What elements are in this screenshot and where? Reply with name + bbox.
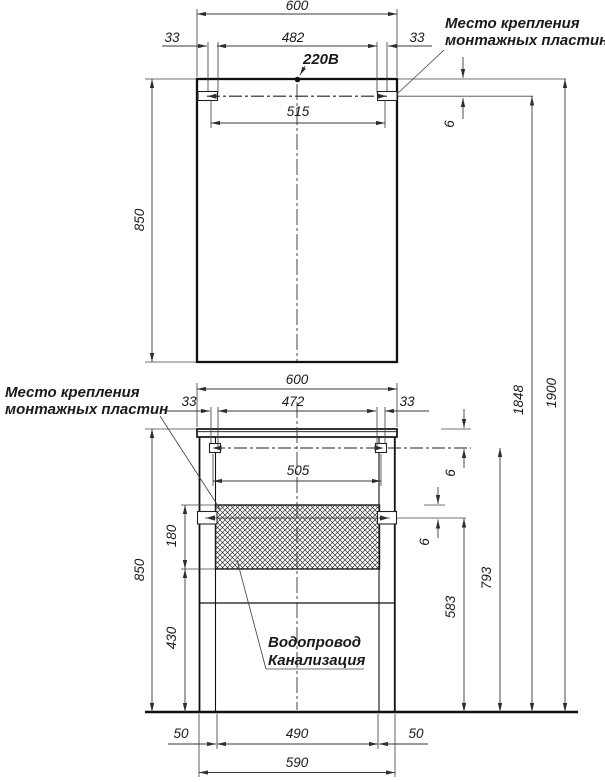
dim-text-cabinet-plate-span: 472 — [282, 394, 305, 409]
dim-cabinet-offset-left: 33 — [166, 394, 210, 411]
vanity-mounting-line — [210, 444, 472, 453]
drawing-canvas: 600 482 33 33 515 850 6 600 472 33 33 — [0, 0, 605, 782]
dim-mirror-height: 850 — [132, 79, 152, 362]
dim-text-cabinet-height: 850 — [132, 558, 147, 581]
label-plumbing-line2: Канализация — [268, 652, 365, 669]
dim-basin-gap: 6 — [417, 487, 438, 546]
dim-text-mirror-plate-span: 482 — [282, 30, 305, 45]
label-mount-plates-top: Место крепления монтажных пластин — [397, 15, 605, 94]
label-mount-plates-left-line1: Место крепления — [5, 384, 140, 401]
dim-text-plinth-offset-left: 50 — [173, 726, 189, 741]
dim-text-cabinet-offset-right: 33 — [399, 394, 415, 409]
label-mount-plates-left-line2: монтажных пластин — [5, 401, 168, 418]
dim-text-mirror-height: 850 — [132, 208, 147, 231]
dim-text-mirror-offset-right: 33 — [409, 30, 425, 45]
label-power-text: 220В — [302, 51, 339, 68]
installation-drawing: 600 482 33 33 515 850 6 600 472 33 33 — [0, 0, 605, 782]
dim-mirror-offset-left: 33 — [162, 30, 207, 46]
dim-cabinet-width: 600 — [197, 372, 397, 389]
dim-body-width: 590 — [199, 755, 395, 773]
dim-text-service-zone-height: 180 — [164, 524, 179, 547]
dim-plinth-offset-right: 50 — [379, 726, 428, 744]
label-power: 220В — [295, 51, 339, 82]
dim-text-cabinet-mount-width: 505 — [287, 463, 310, 478]
dim-mirror-width: 600 — [197, 0, 397, 14]
dim-text-cabinet-mount-height: 793 — [479, 566, 494, 589]
dim-text-mirror-offset-left: 33 — [164, 30, 180, 45]
dim-text-mirror-mount-height: 1848 — [511, 384, 526, 415]
dim-text-cabinet-gap: 6 — [443, 469, 458, 477]
dim-leg-span: 490 — [217, 726, 378, 744]
dim-text-basin-gap: 6 — [417, 538, 432, 546]
dim-mirror-mount-height: 1848 — [511, 97, 532, 713]
power-connection-point — [295, 77, 301, 83]
dim-cabinet-plate-span: 472 — [218, 394, 376, 411]
dim-text-body-width: 590 — [286, 755, 309, 770]
dim-basin-mount-height: 583 — [443, 519, 464, 713]
label-plumbing: Водопровод Канализация — [237, 560, 365, 669]
dim-text-cabinet-offset-left: 33 — [181, 394, 197, 409]
dim-cabinet-gap: 6 — [443, 409, 464, 477]
dim-cabinet-offset-right: 33 — [385, 394, 429, 411]
service-zone-hatch — [216, 505, 380, 569]
dim-mirror-offset-right: 33 — [388, 30, 432, 46]
dim-text-basin-mount-height: 583 — [443, 595, 458, 618]
label-plumbing-line1: Водопровод — [268, 634, 361, 651]
dim-cabinet-height: 850 — [132, 429, 152, 712]
dim-text-plinth-offset-right: 50 — [408, 726, 424, 741]
dim-plinth-offset-left: 50 — [168, 726, 216, 744]
dim-text-mirror-mount-width: 515 — [287, 104, 310, 119]
mirror-mounting-line — [198, 92, 533, 101]
dim-text-overall-height: 1900 — [544, 377, 559, 408]
dim-zone-to-floor: 430 — [164, 569, 185, 712]
dim-text-zone-to-floor: 430 — [164, 626, 179, 649]
dim-overall-height: 1900 — [544, 79, 565, 712]
dim-text-leg-span: 490 — [286, 726, 309, 741]
dim-text-mirror-width: 600 — [286, 0, 309, 13]
dim-cabinet-mount-height: 793 — [479, 448, 500, 712]
dim-text-mirror-gap: 6 — [442, 120, 457, 128]
label-mount-plates-top-line2: монтажных пластин — [445, 32, 605, 49]
dim-mirror-gap: 6 — [442, 57, 463, 128]
dim-text-cabinet-width: 600 — [286, 372, 309, 387]
dim-service-zone-height: 180 — [164, 505, 185, 569]
label-mount-plates-top-line1: Место крепления — [445, 15, 580, 32]
dim-mirror-plate-span: 482 — [217, 30, 377, 46]
dim-mirror-mount-width: 515 — [211, 104, 385, 123]
